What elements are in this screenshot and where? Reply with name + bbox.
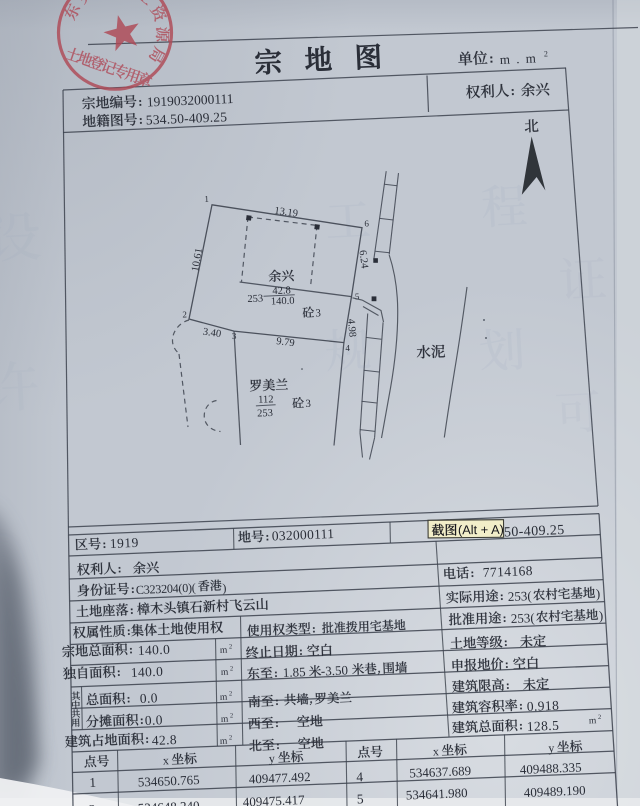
svg-text:m: m	[221, 668, 229, 678]
svg-text:2: 2	[229, 643, 233, 650]
svg-text:2: 2	[230, 712, 234, 719]
svg-text:C323204(0)(: C323204(0)(	[136, 581, 196, 597]
svg-text:253: 253	[257, 408, 273, 420]
svg-text:m . m: m . m	[499, 50, 537, 67]
svg-text:140.0: 140.0	[271, 296, 295, 308]
svg-text:): )	[596, 586, 601, 601]
svg-text:x: x	[433, 744, 440, 758]
svg-text:253: 253	[247, 293, 263, 305]
svg-text:): )	[599, 608, 604, 623]
svg-text:1: 1	[204, 194, 209, 204]
svg-text:409475.417: 409475.417	[243, 792, 306, 806]
svg-text:m: m	[220, 646, 228, 656]
svg-text:112: 112	[258, 394, 274, 406]
svg-text:4: 4	[345, 343, 350, 353]
svg-text:1919: 1919	[110, 535, 140, 551]
svg-text:253(: 253(	[508, 588, 532, 604]
svg-text:4: 4	[356, 769, 364, 784]
svg-text:): )	[222, 581, 227, 595]
svg-text:409489.190: 409489.190	[524, 783, 586, 800]
svg-text:0.0: 0.0	[140, 690, 159, 706]
svg-text:409477.492: 409477.492	[249, 769, 311, 786]
svg-text:534650.765: 534650.765	[138, 772, 200, 789]
svg-text:032000111: 032000111	[272, 526, 335, 543]
svg-text:m: m	[220, 737, 228, 747]
svg-text:534637.689: 534637.689	[409, 763, 471, 780]
svg-text:7714168: 7714168	[483, 563, 534, 580]
svg-text:2: 2	[89, 802, 96, 806]
svg-text:2: 2	[229, 690, 233, 697]
svg-text:-3.50: -3.50	[321, 662, 349, 678]
svg-text:534641.980: 534641.980	[406, 785, 468, 802]
svg-text:3: 3	[315, 307, 321, 319]
svg-text:0.0: 0.0	[145, 712, 164, 728]
svg-text:x: x	[163, 753, 170, 767]
svg-text:409488.335: 409488.335	[520, 760, 582, 777]
svg-text:140.0: 140.0	[131, 664, 164, 680]
svg-text:1: 1	[89, 775, 96, 790]
svg-text:0.918: 0.918	[527, 698, 560, 714]
svg-text:2: 2	[230, 665, 234, 672]
svg-text:1.85: 1.85	[283, 664, 306, 680]
svg-text:4.98: 4.98	[345, 318, 358, 337]
svg-text:3: 3	[305, 398, 311, 410]
svg-text:2: 2	[229, 734, 233, 741]
svg-text:42.8: 42.8	[152, 732, 178, 748]
svg-text:y: y	[548, 741, 555, 755]
svg-text:5: 5	[357, 791, 365, 806]
svg-text:6.24: 6.24	[357, 250, 370, 270]
svg-text:253(: 253(	[511, 610, 535, 626]
svg-text:2: 2	[598, 714, 602, 721]
svg-text:(Alt + A): (Alt + A)	[458, 522, 504, 537]
svg-text:m: m	[589, 716, 597, 726]
svg-text:6: 6	[364, 218, 369, 228]
svg-text:9.79: 9.79	[276, 336, 296, 349]
svg-text:m: m	[220, 693, 228, 703]
svg-text:y: y	[269, 751, 276, 765]
svg-text:140.0: 140.0	[138, 642, 171, 658]
svg-text:128.5: 128.5	[527, 718, 560, 734]
svg-text:m: m	[221, 715, 229, 725]
svg-text:534648.240: 534648.240	[138, 798, 200, 806]
svg-text:2: 2	[544, 49, 548, 58]
svg-text:2: 2	[182, 309, 187, 319]
